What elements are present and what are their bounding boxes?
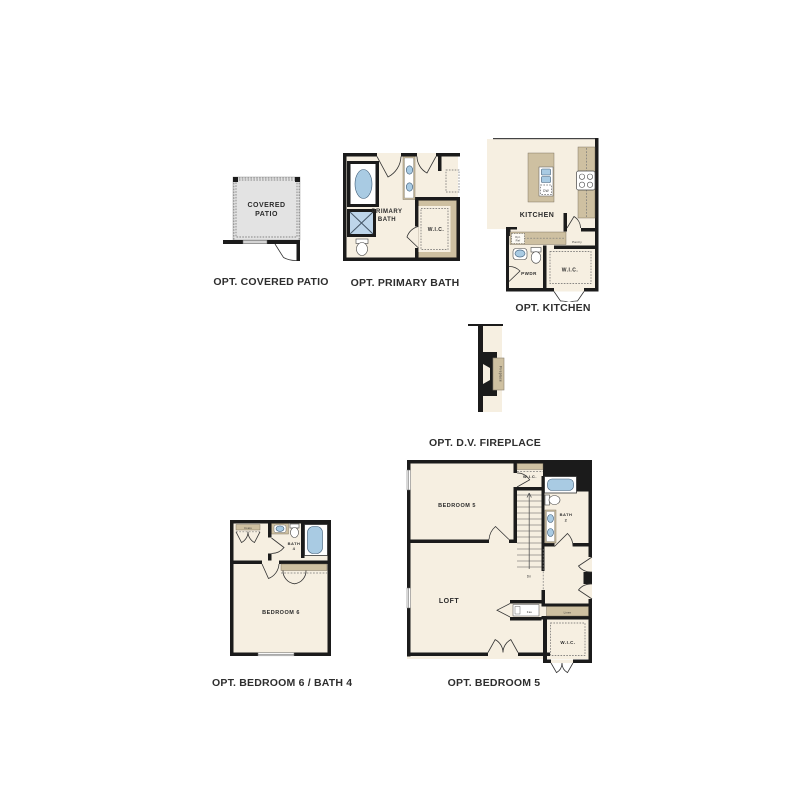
wic-label: W.I.C. (560, 640, 575, 645)
pantry-label: Pantry (572, 240, 582, 244)
plan-caption: OPT. BEDROOM 5 (426, 677, 562, 689)
room-label: BEDROOM 5 (438, 503, 476, 509)
plan-caption: OPT. COVERED PATIO (196, 276, 346, 288)
bedroom6-bath4-plan: Coats BATH 4 BEDROOM 6 (227, 516, 339, 661)
room-label: KITCHEN (520, 212, 555, 219)
opt-ref-label: Ref (516, 238, 521, 242)
bedroom5-plan: W.I.C. Dn Fau Linen (403, 453, 605, 675)
door-swing (275, 244, 297, 261)
bathtub-icon (545, 477, 577, 494)
right-counter (577, 147, 596, 218)
pwdr-label: PWDR (521, 271, 537, 276)
bath-label: 2 (565, 518, 568, 523)
fireplace-plan: Fireplace (458, 320, 543, 420)
double-vanity-sink-icon (403, 157, 415, 200)
loft-label: LOFT (439, 598, 459, 605)
room-label: COVERED (247, 202, 285, 209)
double-vanity-sink-icon (545, 510, 556, 543)
sink-icon (513, 249, 527, 260)
opt-ref-label: Opt. (515, 235, 521, 239)
room-label: PATIO (255, 211, 278, 218)
plan-caption: OPT. BEDROOM 6 / BATH 4 (212, 677, 348, 689)
fireplace-label: Fireplace (499, 366, 503, 382)
wall (478, 326, 483, 412)
fireplace-unit: Fireplace (493, 358, 504, 390)
dishwasher-label: DW (543, 189, 549, 193)
kitchen-island: DW (528, 153, 554, 202)
patio-post (233, 177, 238, 182)
patio-post (295, 177, 300, 182)
primary-bath-plan: PRIMARY BATH W.I.C. (343, 153, 468, 265)
bathtub-icon (347, 161, 379, 207)
bath-label: BATH (560, 512, 573, 517)
room-label: BEDROOM 6 (262, 610, 300, 616)
linen-closet: Linen (547, 607, 589, 617)
kitchen-plan: DW Opt. Ref (487, 138, 602, 302)
coats-label: Coats (244, 526, 252, 530)
plan-caption: OPT. KITCHEN (493, 302, 613, 314)
fau-label: Fau (527, 610, 533, 614)
plan-caption: OPT. PRIMARY BATH (335, 277, 475, 289)
toilet-icon (290, 524, 299, 538)
toilet-icon (545, 495, 560, 505)
toilet-icon (356, 239, 368, 256)
bath-label: 4 (293, 546, 296, 551)
room-label: PRIMARY (372, 209, 403, 215)
stairs-down-label: Dn (527, 575, 532, 579)
linen-label: Linen (564, 610, 572, 614)
wic-label: W.I.C. (428, 227, 445, 233)
covered-patio-plan: COVERED PATIO (196, 165, 346, 265)
optional-refrigerator-box: Opt. Ref (512, 234, 525, 244)
vanity-sink-icon (272, 524, 289, 535)
wic-label: W.I.C. (562, 268, 579, 274)
cooktop-icon (577, 171, 596, 190)
window (258, 653, 294, 656)
wall (468, 324, 503, 326)
bathtub-icon (305, 525, 328, 556)
room-label: BATH (378, 217, 396, 223)
left-counter: Opt. Ref (510, 232, 566, 245)
floor-plan-options-sheet: COVERED PATIO OPT. COVERED PATIO (0, 0, 810, 810)
plan-caption: OPT. D.V. FIREPLACE (420, 437, 550, 449)
house-wall (223, 240, 300, 261)
toilet-icon (531, 248, 541, 264)
